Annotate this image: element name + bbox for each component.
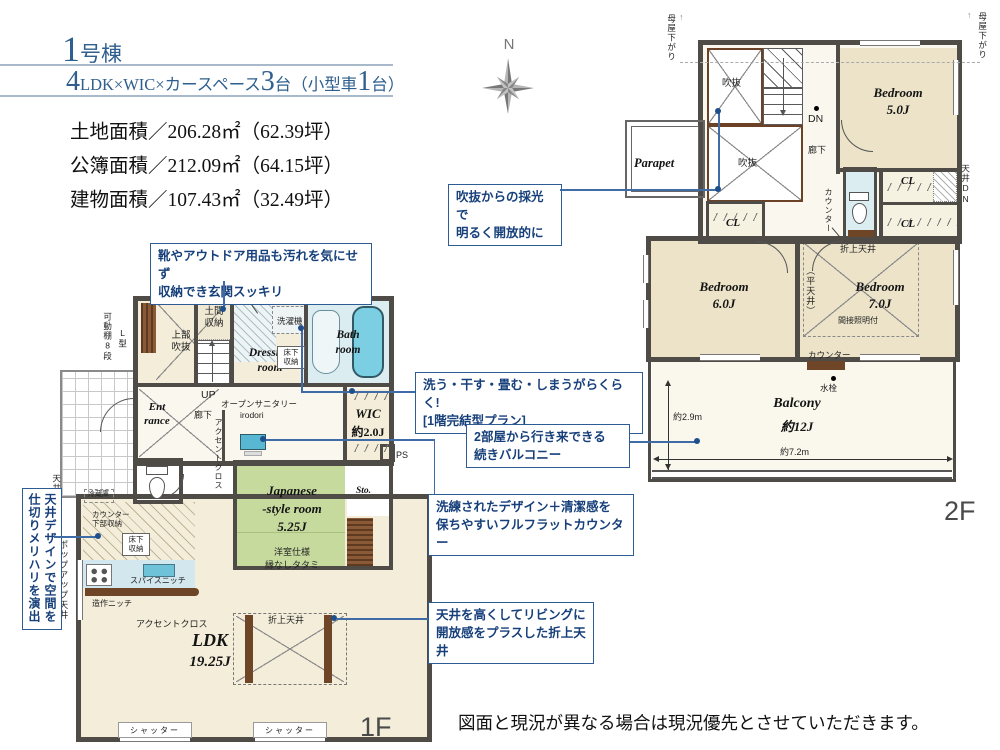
registered-area: 公簿面積／212.09㎡（64.15坪） xyxy=(70,150,343,184)
subtitle-big-1: 1 xyxy=(357,66,371,98)
leader-line xyxy=(337,618,428,620)
leader-line xyxy=(560,189,719,191)
shutter-label: シャッター xyxy=(254,726,326,736)
floorplan-page: 1 号棟 4 LDK×WIC×カースペース 3 台（小型車 1 台） 土地面積／… xyxy=(0,0,1000,750)
open-sanitary-label: オープンサニタリー xyxy=(221,399,297,410)
japanese-room-label: Japanese -style room 5.25J xyxy=(246,482,338,536)
plan-subtitle: 4 LDK×WIC×カースペース 3 台（小型車 1 台） xyxy=(66,66,404,98)
subtitle-text2: 台（小型車 xyxy=(275,71,358,95)
balcony-width-label: 約7.2m xyxy=(780,447,809,458)
hallway-label-1f: 廊下 xyxy=(194,410,212,421)
indirect-light-label: 間接照明付 xyxy=(838,316,878,326)
area-figures: 土地面積／206.28㎡（62.39坪） 公簿面積／212.09㎡（64.15坪… xyxy=(70,116,343,218)
balcony-size-label: 約12J xyxy=(767,416,827,435)
parapet-label: Parapet xyxy=(634,156,674,171)
builtin-niche-label: 造作ニッチ xyxy=(92,599,132,609)
bedroom5-window xyxy=(860,40,920,46)
wall xyxy=(882,202,957,205)
leader-line xyxy=(434,439,436,494)
dim-arrow-right xyxy=(947,456,953,462)
shutter-box: シャッター xyxy=(118,722,192,738)
leader-line xyxy=(301,391,415,393)
wall xyxy=(230,300,234,385)
bedroom5-side-window xyxy=(953,60,959,115)
shutter-label: シャッター xyxy=(119,726,191,736)
wic-label: WIC xyxy=(347,406,389,422)
leader-dot xyxy=(349,388,355,394)
bedroom6-label: Bedroom 6.0J xyxy=(686,278,762,312)
ldk-label: LDK xyxy=(180,630,240,651)
closet-label: CL xyxy=(901,218,915,230)
stove xyxy=(86,564,112,586)
shutter-box: シャッター xyxy=(253,722,327,738)
wall xyxy=(304,300,308,385)
closet-rail xyxy=(349,392,389,400)
subtitle-text3: 台） xyxy=(371,71,404,95)
closet-label: CL xyxy=(726,217,740,229)
compass-icon: N xyxy=(473,33,543,125)
floor2-label: 2F xyxy=(944,496,976,527)
toilet2-tank xyxy=(849,192,869,201)
closet-label: CL xyxy=(901,175,915,187)
hallway-label-2f: 廊下 xyxy=(808,145,826,156)
floor1-label: 1F xyxy=(360,712,392,743)
bedroom5-label: Bedroom 5.0J xyxy=(858,84,938,118)
callout-void-light: 吹抜からの採光で 明るく開放的に xyxy=(448,184,562,246)
balcony-depth-label: 約2.9m xyxy=(673,412,702,423)
leader-dot xyxy=(298,325,304,331)
counter-label-v: カウンター xyxy=(823,188,833,238)
leader-line xyxy=(301,328,303,392)
coffered-ceiling-label-1f: 折上天井 xyxy=(268,615,304,626)
irodori-label: irodori xyxy=(240,410,264,421)
balcony-door xyxy=(700,354,760,361)
callout-ceiling-design: 天井デザインで空間を 仕切りメリハリを演出 xyxy=(22,488,62,630)
dim-arrow-left xyxy=(653,456,659,462)
roof-slope-dashed-line xyxy=(680,62,980,63)
subtitle-text: LDK×WIC×カースペース xyxy=(80,71,261,95)
spice-niche-label: スパイスニッチ xyxy=(130,576,186,586)
roof-slope-arrow: ↑ xyxy=(679,12,684,23)
wic-size-label: 約2.0J xyxy=(345,423,391,440)
accent-cross-label-h: アクセントクロス xyxy=(136,619,208,630)
balcony-door xyxy=(860,354,920,361)
dimension-line-h xyxy=(656,459,950,460)
leader-dot xyxy=(715,108,721,114)
entrance-label: Ent rance xyxy=(138,400,176,429)
balcony-rail xyxy=(652,470,952,479)
leader-line xyxy=(54,536,98,538)
water-tap-label: 水栓 xyxy=(820,383,837,394)
leader-line xyxy=(263,439,435,441)
void-label: 上部 吹抜 xyxy=(164,330,198,354)
leader-line xyxy=(630,441,697,443)
roof-slope-arrow: ↑ xyxy=(967,10,972,21)
land-area: 土地面積／206.28㎡（62.39坪） xyxy=(70,116,343,150)
roof-slope-label-left: 母屋下がり xyxy=(666,14,677,72)
pipe-space-label: PS xyxy=(396,450,408,461)
leader-dot xyxy=(220,306,226,312)
movable-shelf-label: 可動棚8段 xyxy=(102,312,113,376)
compass-north-letter: N xyxy=(504,36,515,53)
underfloor-storage-label: 床下 収納 xyxy=(122,533,150,556)
closet-rail xyxy=(349,444,389,452)
subtitle-big-3: 3 xyxy=(261,66,275,98)
leader-dot xyxy=(715,186,721,192)
storage-label: Sto. xyxy=(356,486,371,496)
dimension-line-v xyxy=(668,382,669,470)
subtitle-big-4: 4 xyxy=(66,66,80,98)
l-shape-label: L型 xyxy=(117,328,128,354)
bath-room-label: Bath room xyxy=(326,328,370,358)
stairs-dn-label: DN xyxy=(808,113,823,126)
dn-dot xyxy=(814,106,819,111)
counter-lower-storage-label: カウンター 下部収納 xyxy=(92,510,130,529)
balcony-label: Balcony xyxy=(763,396,831,412)
counter-label-h: カウンター xyxy=(808,350,851,361)
kitchen-window xyxy=(77,560,83,620)
ldk-size-label: 19.25J xyxy=(176,654,244,671)
leader-dot xyxy=(331,615,337,621)
bedroom6-window xyxy=(643,300,649,328)
accent-cross-label-v: アクセントクロス xyxy=(213,418,223,494)
leader-line xyxy=(718,111,720,190)
callout-coffered-ceiling: 天井を高くしてリビングに 開放感をプラスした折上天井 xyxy=(428,602,594,664)
ceiling-down-label-2f: 天井DN xyxy=(960,164,971,214)
western-spec-label: 洋室仕様 xyxy=(264,547,320,558)
wall xyxy=(795,240,800,358)
toilet2-counter xyxy=(848,230,874,237)
callout-connected-balcony: 2部屋から行き来できる 続きバルコニー xyxy=(466,424,630,468)
porch-tile-area xyxy=(60,370,138,498)
dim-arrow-down xyxy=(665,464,671,470)
void-label-2f: 吹抜 xyxy=(722,78,741,90)
leader-dot xyxy=(694,438,700,444)
stairs-up-label: UP xyxy=(201,389,216,402)
disclaimer-text: 図面と現況が異なる場合は現況優先とさせていただきます。 xyxy=(458,710,929,735)
tatami-label: 縁なしタタミ xyxy=(256,560,328,571)
leader-dot xyxy=(260,436,266,442)
bedroom7-window xyxy=(953,250,959,305)
vanity-base xyxy=(244,451,262,456)
leader-dot xyxy=(95,533,101,539)
flat-ceiling-label: （平天井） xyxy=(804,266,815,322)
void-label-2f: 吹抜 xyxy=(738,158,757,170)
bedroom6-window xyxy=(643,255,649,283)
wall xyxy=(836,44,840,174)
dim-arrow-up xyxy=(665,380,671,386)
header-rule-bottom xyxy=(0,95,393,97)
coffered-ceiling-label-2f: 折上天井 xyxy=(840,244,876,255)
water-tap-dot xyxy=(831,376,836,381)
building-area: 建物面積／107.43㎡（32.49坪） xyxy=(70,184,343,218)
fridge-label: 冷蔵庫 xyxy=(88,491,109,500)
callout-flat-counter: 洗練されたデザイン＋清潔感を 保ちやすいフルフラットカウンター xyxy=(428,494,634,556)
wall xyxy=(137,383,390,387)
bedroom7-counter-bar xyxy=(807,361,845,370)
bedroom7-label: Bedroom 7.0J xyxy=(842,278,918,312)
callout-entrance-storage: 靴やアウトドア用品も汚れを気にせず 収納でき玄関スッキリ xyxy=(150,243,372,305)
